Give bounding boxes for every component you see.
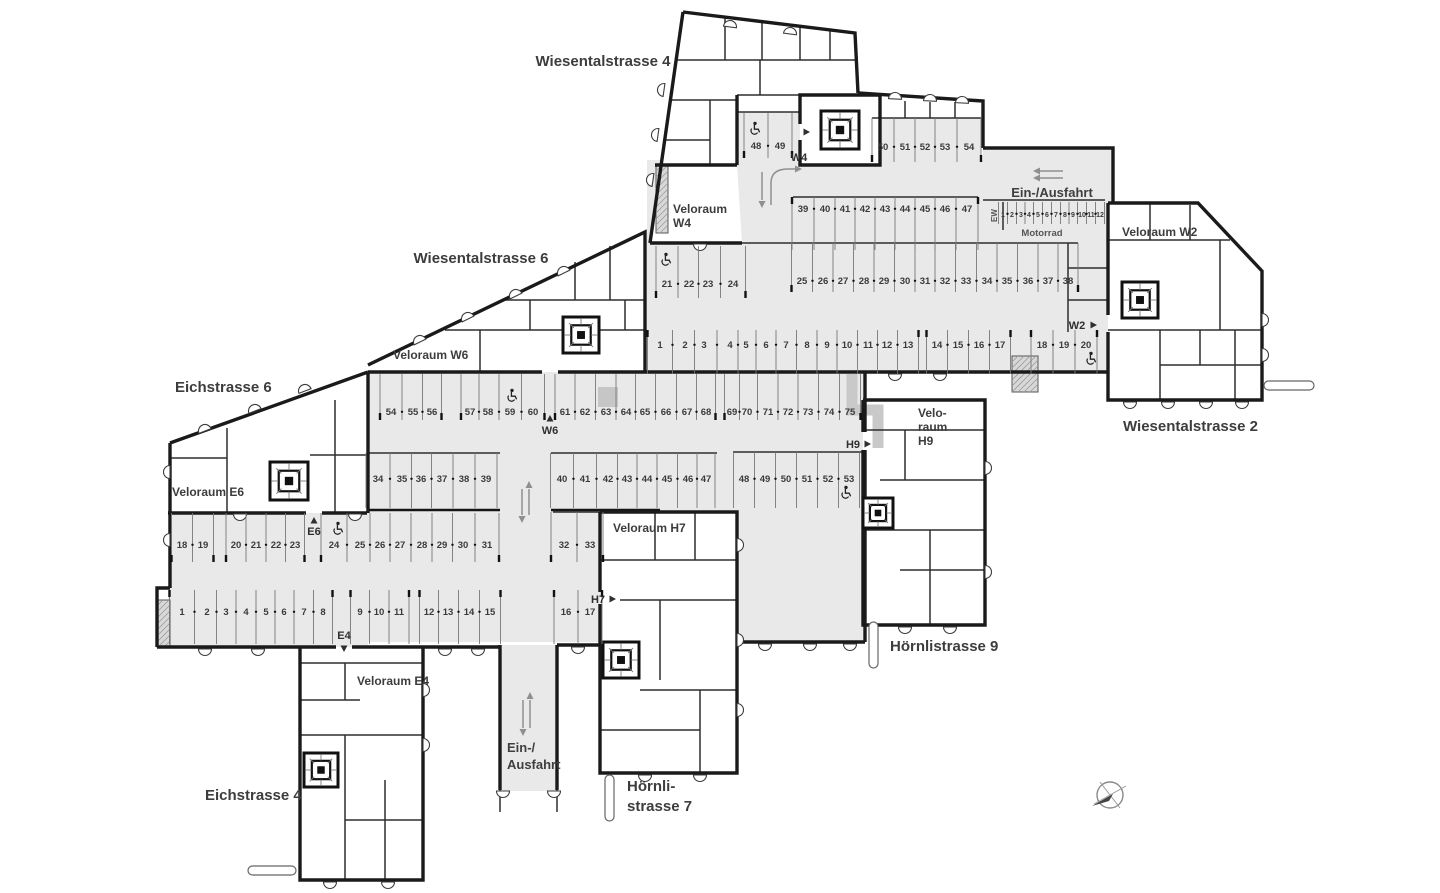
parking-spot-number: 47 bbox=[701, 474, 712, 485]
parking-bay-dot bbox=[797, 411, 799, 413]
parking-spot-number: 41 bbox=[580, 474, 591, 485]
parking-spot-number: 28 bbox=[417, 540, 428, 551]
parking-bay-dot bbox=[988, 344, 990, 346]
parking-spot-number: 3 bbox=[701, 340, 706, 351]
parking-spot-number: 75 bbox=[845, 407, 856, 418]
parking-spot-number: 10 bbox=[1078, 212, 1086, 219]
parking-spot-number: 27 bbox=[838, 276, 849, 287]
parking-bay-dot bbox=[775, 344, 777, 346]
entrance-marker-w2: W2 bbox=[1069, 320, 1086, 332]
parking-spot-number: 68 bbox=[701, 407, 712, 418]
parking-spot-number: 10 bbox=[374, 607, 385, 618]
parking-spot-number: 71 bbox=[763, 407, 774, 418]
parking-spot-number: 19 bbox=[198, 540, 209, 551]
parking-spot-number: 55 bbox=[408, 407, 419, 418]
parking-spot-number: 52 bbox=[823, 474, 834, 485]
driveway-label-ein-ausfahrt-bottom: Ein-/ bbox=[507, 740, 536, 755]
parking-bay-dot bbox=[914, 208, 916, 210]
wheelchair-icon-part bbox=[844, 486, 847, 489]
parking-spot-number: 38 bbox=[459, 474, 470, 485]
wheelchair-icon-part bbox=[510, 389, 513, 392]
parking-spot-number: 39 bbox=[481, 474, 492, 485]
parking-bay-dot bbox=[737, 344, 739, 346]
parking-bay-dot bbox=[410, 478, 412, 480]
parking-spot-number: 38 bbox=[1063, 276, 1074, 287]
parking-spot-number: 10 bbox=[842, 340, 853, 351]
entrance-marker-h9: H9 bbox=[846, 439, 860, 451]
parking-spot-number: 23 bbox=[703, 279, 714, 290]
room-label-veloraum-w4: W4 bbox=[673, 216, 691, 230]
parking-spot-number: 47 bbox=[962, 204, 973, 215]
parking-bay-dot bbox=[431, 544, 433, 546]
parking-spot-number: 16 bbox=[561, 607, 572, 618]
wheelchair-icon-part bbox=[753, 122, 756, 125]
street-label-hoernlistrasse-9: Hörnlistrasse 9 bbox=[890, 638, 998, 655]
parking-spot-number: 1 bbox=[179, 607, 185, 618]
parking-spot-number: 70 bbox=[742, 407, 753, 418]
parking-bay-dot bbox=[914, 280, 916, 282]
parking-bay-dot bbox=[215, 611, 217, 613]
parking-bay-dot bbox=[852, 280, 854, 282]
parking-spot-number: 45 bbox=[662, 474, 673, 485]
parking-bay-dot bbox=[854, 208, 856, 210]
parking-bay-dot bbox=[654, 411, 656, 413]
parking-bay-dot bbox=[876, 344, 878, 346]
parking-spot-number: 18 bbox=[1037, 340, 1048, 351]
ground-anchor-rod bbox=[605, 775, 614, 821]
parking-bay-dot bbox=[967, 344, 969, 346]
stairwell-icon-core bbox=[617, 656, 625, 664]
room-label-veloraum-w4: Veloraum bbox=[673, 202, 727, 216]
parking-bay-dot bbox=[894, 208, 896, 210]
parking-spot-number: 24 bbox=[329, 540, 340, 551]
parking-bay-dot bbox=[293, 611, 295, 613]
parking-spot-number: 6 bbox=[281, 607, 286, 618]
parking-bay-dot bbox=[816, 478, 818, 480]
parking-bay-dot bbox=[719, 283, 721, 285]
parking-bay-dot bbox=[874, 208, 876, 210]
parking-bay-dot bbox=[716, 344, 718, 346]
parking-bay-dot bbox=[457, 611, 459, 613]
parking-spot-number: 60 bbox=[528, 407, 539, 418]
parking-spot-number: 5 bbox=[1036, 212, 1040, 219]
parking-spot-number: 37 bbox=[1043, 276, 1054, 287]
parking-spot-number: 34 bbox=[373, 474, 384, 485]
parking-spot-number: 40 bbox=[557, 474, 568, 485]
parking-bay-dot bbox=[836, 344, 838, 346]
parking-bay-dot bbox=[312, 611, 314, 613]
driveway-label-ein-ausfahrt-top: Ein-/Ausfahrt bbox=[1011, 185, 1093, 200]
parking-spot-number: 42 bbox=[603, 474, 614, 485]
parking-spot-number: 46 bbox=[683, 474, 694, 485]
parking-bay-dot bbox=[1015, 213, 1017, 215]
stairwell-icon-core bbox=[875, 510, 882, 517]
parking-bay-dot bbox=[191, 544, 193, 546]
parking-spot-number: 59 bbox=[505, 407, 516, 418]
parking-spot-number: 11 bbox=[863, 340, 874, 351]
parking-bay-dot bbox=[755, 344, 757, 346]
parking-bay-dot bbox=[474, 544, 476, 546]
parking-bay-dot bbox=[756, 411, 758, 413]
parking-spot-number: 7 bbox=[1054, 212, 1058, 219]
parking-spot-number: 30 bbox=[900, 276, 911, 287]
stairwell-icon-core bbox=[317, 766, 324, 773]
parking-bay-dot bbox=[452, 478, 454, 480]
parking-bay-dot bbox=[832, 280, 834, 282]
parking-spot-number: 8 bbox=[320, 607, 325, 618]
parking-bay-dot bbox=[896, 344, 898, 346]
parking-bay-dot bbox=[934, 280, 936, 282]
entrance-marker-h7: H7 bbox=[591, 594, 605, 606]
parking-spot-number: 2 bbox=[682, 340, 687, 351]
parking-spot-number: 54 bbox=[964, 142, 975, 153]
parking-bay-dot bbox=[245, 544, 247, 546]
room-label-veloraum-w6: Veloraum W6 bbox=[393, 348, 469, 362]
parking-spot-number: 16 bbox=[974, 340, 985, 351]
parking-bay-dot bbox=[676, 478, 678, 480]
parking-bay-dot bbox=[401, 411, 403, 413]
parking-spot-number: 4 bbox=[727, 340, 733, 351]
parking-spot-number: 66 bbox=[661, 407, 672, 418]
parking-bay-dot bbox=[795, 344, 797, 346]
parking-spot-number: 24 bbox=[728, 279, 739, 290]
parking-bay-dot bbox=[451, 544, 453, 546]
street-label-eichstrasse-4: Eichstrasse 4 bbox=[205, 787, 302, 804]
parking-bay-dot bbox=[1041, 213, 1043, 215]
parking-spot-number: 3 bbox=[1019, 212, 1023, 219]
parking-bay-dot bbox=[753, 478, 755, 480]
parking-bay-dot bbox=[671, 344, 673, 346]
parking-spot-number: 58 bbox=[483, 407, 494, 418]
parking-spot-number: 62 bbox=[580, 407, 591, 418]
parking-spot-number: 20 bbox=[1081, 340, 1092, 351]
wheelchair-icon-part bbox=[336, 522, 339, 525]
parking-spot-number: 35 bbox=[1002, 276, 1013, 287]
entrance-marker-e4: E4 bbox=[337, 630, 351, 642]
parking-bay-dot bbox=[520, 411, 522, 413]
parking-bay-dot bbox=[955, 208, 957, 210]
garage-floor bbox=[872, 118, 981, 164]
parking-bay-dot bbox=[811, 280, 813, 282]
parking-spot-number: 18 bbox=[177, 540, 188, 551]
street-label-hoernlistrasse-7: strasse 7 bbox=[627, 798, 692, 815]
parking-bay-dot bbox=[677, 283, 679, 285]
parking-bay-dot bbox=[1059, 213, 1061, 215]
w6-shaft-shading bbox=[598, 387, 618, 407]
parking-spot-number: 51 bbox=[802, 474, 813, 485]
parking-spot-number: 25 bbox=[355, 540, 366, 551]
parking-spot-number: 5 bbox=[263, 607, 269, 618]
parking-bay-dot bbox=[388, 611, 390, 613]
parking-spot-number: 33 bbox=[585, 540, 596, 551]
parking-spot-number: 12 bbox=[882, 340, 893, 351]
parking-bay-dot bbox=[594, 411, 596, 413]
parking-bay-dot bbox=[1068, 213, 1070, 215]
ground-anchor-rod bbox=[248, 866, 296, 875]
parking-bay-dot bbox=[767, 145, 769, 147]
ew-label: EW bbox=[990, 209, 999, 222]
parking-spot-number: 48 bbox=[739, 474, 750, 485]
parking-bay-dot bbox=[934, 146, 936, 148]
wheelchair-icon-part bbox=[1089, 352, 1092, 355]
parking-spot-number: 9 bbox=[824, 340, 829, 351]
parking-bay-dot bbox=[1006, 213, 1008, 215]
parking-spot-number: 65 bbox=[640, 407, 651, 418]
parking-bay-dot bbox=[346, 544, 348, 546]
stairwell-icon-core bbox=[577, 331, 585, 339]
parking-bay-dot bbox=[636, 478, 638, 480]
parking-spot-number: 6 bbox=[763, 340, 768, 351]
parking-spot-number: 12 bbox=[1096, 212, 1104, 219]
parking-spot-number: 56 bbox=[427, 407, 438, 418]
parking-bay-dot bbox=[817, 411, 819, 413]
stairwell-icon-core bbox=[1136, 296, 1144, 304]
parking-spot-number: 2 bbox=[1010, 212, 1014, 219]
parking-spot-number: 67 bbox=[682, 407, 693, 418]
parking-bay-dot bbox=[389, 478, 391, 480]
parking-bay-dot bbox=[421, 411, 423, 413]
parking-spot-number: 31 bbox=[920, 276, 931, 287]
parking-bay-dot bbox=[410, 544, 412, 546]
entrance-marker-w4: W4 bbox=[791, 152, 808, 164]
parking-spot-number: 46 bbox=[940, 204, 951, 215]
parking-bay-dot bbox=[738, 411, 740, 413]
parking-spot-number: 30 bbox=[458, 540, 469, 551]
parking-spot-number: 43 bbox=[622, 474, 633, 485]
parking-bay-dot bbox=[595, 478, 597, 480]
parking-bay-dot bbox=[474, 478, 476, 480]
parking-bay-dot bbox=[577, 611, 579, 613]
parking-bay-dot bbox=[437, 611, 439, 613]
ground-anchor-rod bbox=[1264, 381, 1314, 390]
parking-bay-dot bbox=[693, 344, 695, 346]
parking-bay-dot bbox=[954, 280, 956, 282]
parking-spot-number: 36 bbox=[416, 474, 427, 485]
garage-floor bbox=[168, 513, 368, 647]
parking-spot-number: 49 bbox=[760, 474, 771, 485]
parking-spot-number: 28 bbox=[859, 276, 870, 287]
parking-bay-dot bbox=[893, 280, 895, 282]
parking-spot-number: 41 bbox=[840, 204, 851, 215]
parking-spot-number: 22 bbox=[271, 540, 282, 551]
parking-spot-number: 61 bbox=[560, 407, 571, 418]
parking-bay-dot bbox=[1052, 344, 1054, 346]
parking-bay-dot bbox=[838, 411, 840, 413]
parking-spot-number: 50 bbox=[781, 474, 792, 485]
parking-spot-number: 52 bbox=[920, 142, 931, 153]
parking-spot-number: 57 bbox=[465, 407, 476, 418]
parking-bay-dot bbox=[914, 146, 916, 148]
parking-bay-dot bbox=[368, 611, 370, 613]
parking-spot-number: 42 bbox=[860, 204, 871, 215]
parking-spot-number: 49 bbox=[775, 141, 786, 152]
parking-bay-dot bbox=[873, 280, 875, 282]
parking-bay-dot bbox=[1074, 344, 1076, 346]
parking-spot-number: 26 bbox=[375, 540, 386, 551]
parking-spot-number: 9 bbox=[1071, 212, 1075, 219]
parking-spot-number: 27 bbox=[395, 540, 406, 551]
parking-bay-dot bbox=[774, 478, 776, 480]
parking-spot-number: 45 bbox=[920, 204, 931, 215]
parking-spot-number: 11 bbox=[394, 607, 405, 618]
room-label-veloraum-w2: Veloraum W2 bbox=[1122, 225, 1198, 239]
parking-spot-number: 39 bbox=[798, 204, 809, 215]
parking-bay-dot bbox=[1032, 213, 1034, 215]
room-label-veloraum-e6: Veloraum E6 bbox=[172, 485, 244, 499]
driveway-label-ein-ausfahrt-bottom: Ausfahrt bbox=[507, 757, 561, 772]
parking-spot-number: 12 bbox=[424, 607, 435, 618]
parking-spot-number: 74 bbox=[824, 407, 835, 418]
parking-bay-dot bbox=[274, 611, 276, 613]
parking-spot-number: 34 bbox=[982, 276, 993, 287]
parking-bay-dot bbox=[934, 208, 936, 210]
parking-bay-dot bbox=[1024, 213, 1026, 215]
parking-spot-number: 31 bbox=[482, 540, 493, 551]
parking-spot-number: 4 bbox=[243, 607, 249, 618]
parking-bay-dot bbox=[478, 611, 480, 613]
parking-spot-number: 1 bbox=[1001, 212, 1005, 219]
parking-spot-number: 63 bbox=[601, 407, 612, 418]
parking-spot-number: 21 bbox=[662, 279, 673, 290]
parking-bay-dot bbox=[946, 344, 948, 346]
parking-spot-number: 29 bbox=[879, 276, 890, 287]
parking-bay-dot bbox=[795, 478, 797, 480]
parking-spot-number: 15 bbox=[485, 607, 496, 618]
parking-spot-number: 17 bbox=[995, 340, 1006, 351]
parking-bay-dot bbox=[777, 411, 779, 413]
floor-plan: 4849505152535439404142434445464721222324… bbox=[0, 0, 1440, 893]
parking-bay-dot bbox=[498, 411, 500, 413]
parking-bay-dot bbox=[816, 344, 818, 346]
stairwell-icon-core bbox=[285, 477, 293, 485]
parking-spot-number: 8 bbox=[804, 340, 809, 351]
parking-spot-number: 7 bbox=[301, 607, 306, 618]
parking-bay-dot bbox=[813, 208, 815, 210]
parking-spot-number: 48 bbox=[751, 141, 762, 152]
parking-bay-dot bbox=[574, 411, 576, 413]
parking-bay-dot bbox=[837, 478, 839, 480]
parking-spot-number: 20 bbox=[231, 540, 242, 551]
parking-spot-number: 53 bbox=[940, 142, 951, 153]
parking-bay-dot bbox=[1050, 213, 1052, 215]
parking-spot-number: 1 bbox=[657, 340, 663, 351]
parking-spot-number: 72 bbox=[783, 407, 794, 418]
parking-spot-number: 40 bbox=[820, 204, 831, 215]
parking-bay-dot bbox=[1057, 280, 1059, 282]
parking-spot-number: 6 bbox=[1045, 212, 1049, 219]
street-label-wiesentalstrasse-2: Wiesentalstrasse 2 bbox=[1123, 418, 1258, 435]
parking-bay-dot bbox=[675, 411, 677, 413]
parking-spot-number: 64 bbox=[621, 407, 632, 418]
street-label-eichstrasse-6: Eichstrasse 6 bbox=[175, 379, 272, 396]
parking-spot-number: 32 bbox=[559, 540, 570, 551]
parking-spot-number: 13 bbox=[903, 340, 914, 351]
parking-spot-number: 26 bbox=[818, 276, 829, 287]
parking-bay-dot bbox=[696, 478, 698, 480]
parking-bay-dot bbox=[576, 544, 578, 546]
parking-spot-number: 25 bbox=[797, 276, 808, 287]
parking-bay-dot bbox=[996, 280, 998, 282]
parking-spot-number: 5 bbox=[743, 340, 749, 351]
parking-bay-dot bbox=[193, 611, 195, 613]
parking-spot-number: 14 bbox=[932, 340, 943, 351]
parking-bay-dot bbox=[695, 411, 697, 413]
parking-bay-dot bbox=[284, 544, 286, 546]
stairwell-icon-core bbox=[836, 126, 844, 134]
parking-spot-number: 69 bbox=[727, 407, 738, 418]
wheelchair-icon-part bbox=[664, 253, 667, 256]
parking-spot-number: 7 bbox=[783, 340, 788, 351]
parking-spot-number: 3 bbox=[223, 607, 228, 618]
parking-bay-dot bbox=[572, 478, 574, 480]
parking-bay-dot bbox=[430, 478, 432, 480]
parking-spot-number: 35 bbox=[397, 474, 408, 485]
parking-bay-dot bbox=[1037, 280, 1039, 282]
parking-bay-dot bbox=[478, 411, 480, 413]
parking-spot-number: 19 bbox=[1059, 340, 1070, 351]
street-label-wiesentalstrasse-6: Wiesentalstrasse 6 bbox=[414, 250, 549, 267]
street-label-hoernlistrasse-7: Hörnli- bbox=[627, 778, 675, 795]
parking-spot-number: 33 bbox=[961, 276, 972, 287]
parking-spot-number: 22 bbox=[684, 279, 695, 290]
parking-bay-dot bbox=[255, 611, 257, 613]
parking-spot-number: 54 bbox=[386, 407, 397, 418]
room-label-veloraum-h9: raum bbox=[918, 420, 947, 434]
street-label-wiesentalstrasse-4: Wiesentalstrasse 4 bbox=[536, 53, 672, 70]
ground-anchor-rod bbox=[869, 622, 878, 668]
parking-bay-dot bbox=[893, 146, 895, 148]
parking-bay-dot bbox=[265, 544, 267, 546]
parking-bay-dot bbox=[1016, 280, 1018, 282]
parking-bay-dot bbox=[235, 611, 237, 613]
parking-spot-number: 43 bbox=[880, 204, 891, 215]
parking-spot-number: 4 bbox=[1027, 212, 1031, 219]
parking-spot-number: 37 bbox=[437, 474, 448, 485]
parking-bay-dot bbox=[634, 411, 636, 413]
floor-plan-svg: 4849505152535439404142434445464721222324… bbox=[0, 0, 1440, 893]
parking-spot-number: 29 bbox=[437, 540, 448, 551]
parking-spot-number: 73 bbox=[803, 407, 814, 418]
parking-spot-number: 50 bbox=[878, 142, 889, 153]
parking-bay-dot bbox=[856, 344, 858, 346]
parking-bay-dot bbox=[656, 478, 658, 480]
parking-bay-dot bbox=[975, 280, 977, 282]
parking-bay-dot bbox=[369, 544, 371, 546]
parking-spot-number: 14 bbox=[464, 607, 475, 618]
parking-bay-dot bbox=[697, 283, 699, 285]
parking-spot-number: 51 bbox=[900, 142, 911, 153]
parking-spot-number: 11 bbox=[1087, 212, 1095, 219]
motorrad-label: Motorrad bbox=[1021, 228, 1062, 239]
parking-spot-number: 17 bbox=[585, 607, 596, 618]
parking-spot-number: 8 bbox=[1063, 212, 1067, 219]
room-label-veloraum-h9: Velo- bbox=[918, 406, 947, 420]
parking-spot-number: 44 bbox=[642, 474, 653, 485]
parking-spot-number: 44 bbox=[900, 204, 911, 215]
parking-bay-dot bbox=[956, 146, 958, 148]
room-label-veloraum-h9: H9 bbox=[918, 434, 934, 448]
parking-spot-number: 13 bbox=[443, 607, 454, 618]
parking-spot-number: 32 bbox=[940, 276, 951, 287]
parking-spot-number: 2 bbox=[204, 607, 209, 618]
parking-bay-dot bbox=[834, 208, 836, 210]
parking-spot-number: 21 bbox=[251, 540, 262, 551]
parking-spot-number: 23 bbox=[290, 540, 301, 551]
entrance-marker-e6: E6 bbox=[307, 526, 320, 538]
parking-spot-number: 15 bbox=[953, 340, 964, 351]
room-label-veloraum-e4: Veloraum E4 bbox=[357, 674, 429, 688]
parking-bay-dot bbox=[389, 544, 391, 546]
